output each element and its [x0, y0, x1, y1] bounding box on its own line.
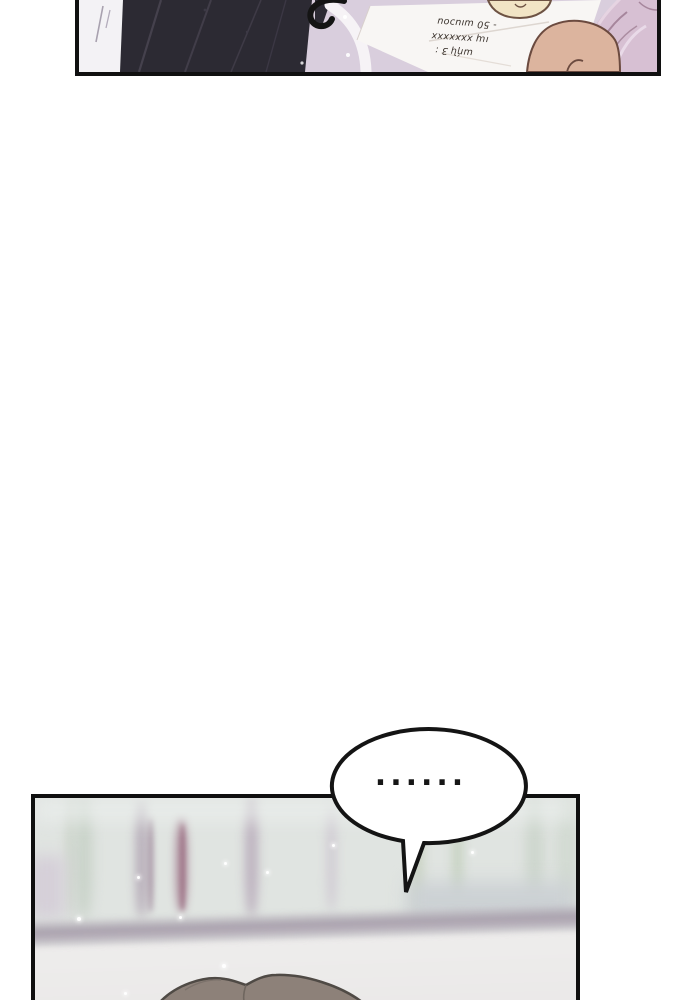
top-panel: ɯήʮ 3 : ıɰ xxxxxxx - 50 ɯıuɔou: [75, 0, 661, 76]
speech-bubble-outline: [332, 729, 526, 892]
bubble-dots: ......: [375, 761, 467, 791]
paper-handwriting: ɯήʮ 3 : ıɰ xxxxxxx - 50 ɯıuɔou: [416, 9, 505, 61]
sparkle-icon: [300, 61, 303, 64]
speech-bubble: ......: [320, 723, 530, 900]
sparkle-icon: [346, 53, 350, 57]
speech-bubble-shape: [320, 723, 530, 900]
dark-clothing-shape: [120, 0, 331, 72]
sparkle-icon: [343, 15, 347, 19]
comic-page: ɯήʮ 3 : ıɰ xxxxxxx - 50 ɯıuɔou: [0, 0, 700, 1000]
top-panel-art: [79, 0, 657, 72]
